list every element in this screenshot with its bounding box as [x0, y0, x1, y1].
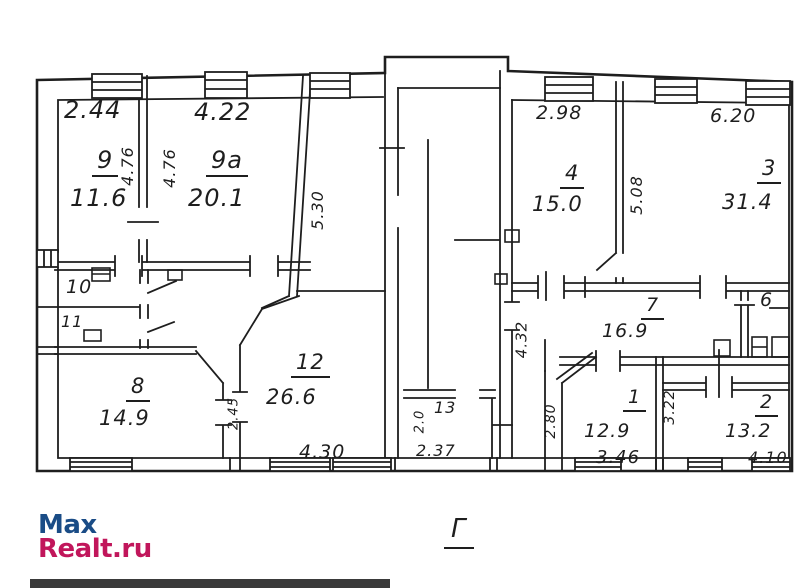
dim-room9a-depth: 4.76: [162, 138, 178, 198]
room-11-number: 11: [61, 314, 83, 330]
room-9a-area: 20.1: [188, 186, 245, 210]
room-7-number: 7: [641, 296, 664, 320]
dim-room1-left: 2.80: [544, 391, 558, 451]
window-symbol: [205, 72, 247, 98]
dim-corridor-length: 5.30: [310, 180, 326, 240]
dim-hall-length: 4.32: [515, 310, 530, 370]
room-4-area: 15.0: [532, 194, 583, 215]
bottom-bar: [30, 579, 390, 588]
dim-room2-width: 4.10: [748, 450, 788, 466]
window-symbol: [37, 250, 58, 267]
room-8-number: 8: [126, 376, 150, 402]
room-12-area: 26.6: [266, 387, 317, 408]
room-2-number: 2: [755, 393, 778, 417]
dim-room2-depth: 3.22: [663, 377, 677, 437]
room-9-number: 9: [92, 148, 118, 177]
window-symbol: [688, 458, 722, 471]
room-1-number: 1: [623, 388, 646, 412]
dim-room9a-width: 4.22: [194, 100, 251, 124]
dim-room12-width: 4.30: [299, 443, 345, 462]
room-12-number: 12: [291, 352, 330, 378]
dim-room4-width: 2.98: [536, 104, 582, 123]
dim-room4-depth: 5.08: [629, 165, 645, 225]
floorplan-page: 2.44 4.22 9 11.6 4.76 4.76 9a 20.1 5.30 …: [0, 0, 800, 588]
dim-room8-niche: 2.45: [228, 384, 241, 444]
window-symbol: [655, 79, 697, 103]
room-3-number: 3: [757, 158, 781, 184]
room-1-area: 12.9: [584, 422, 630, 441]
room-9a-number: 9a: [206, 148, 248, 177]
window-symbol: [746, 81, 790, 105]
dim-room3-width: 6.20: [710, 107, 756, 126]
window-symbol: [92, 74, 142, 98]
window-symbol: [545, 77, 593, 101]
room-7-area: 16.9: [602, 322, 648, 341]
room-9-area: 11.6: [70, 186, 127, 210]
window-symbol: [70, 458, 132, 471]
dim-room9-width: 2.44: [64, 98, 121, 122]
room-3-area: 31.4: [722, 192, 773, 213]
floor-plan-drawing: [0, 0, 800, 588]
site-logo[interactable]: Max Realt.ru: [38, 514, 152, 562]
section-label: Г: [444, 516, 474, 549]
dim-room13-width: 2.37: [416, 443, 456, 459]
dim-room9-depth: 4.76: [120, 136, 136, 196]
dim-room1-width: 3.46: [596, 449, 640, 467]
room-10-number: 10: [66, 278, 92, 297]
room-6-number: 6: [760, 291, 773, 310]
room-4-number: 4: [560, 163, 584, 189]
room-2-area: 13.2: [725, 422, 771, 441]
window-symbol: [310, 73, 350, 98]
site-logo-line2: Realt.ru: [38, 538, 152, 562]
room-8-area: 14.9: [99, 408, 150, 429]
room-13-number: 13: [434, 400, 456, 416]
